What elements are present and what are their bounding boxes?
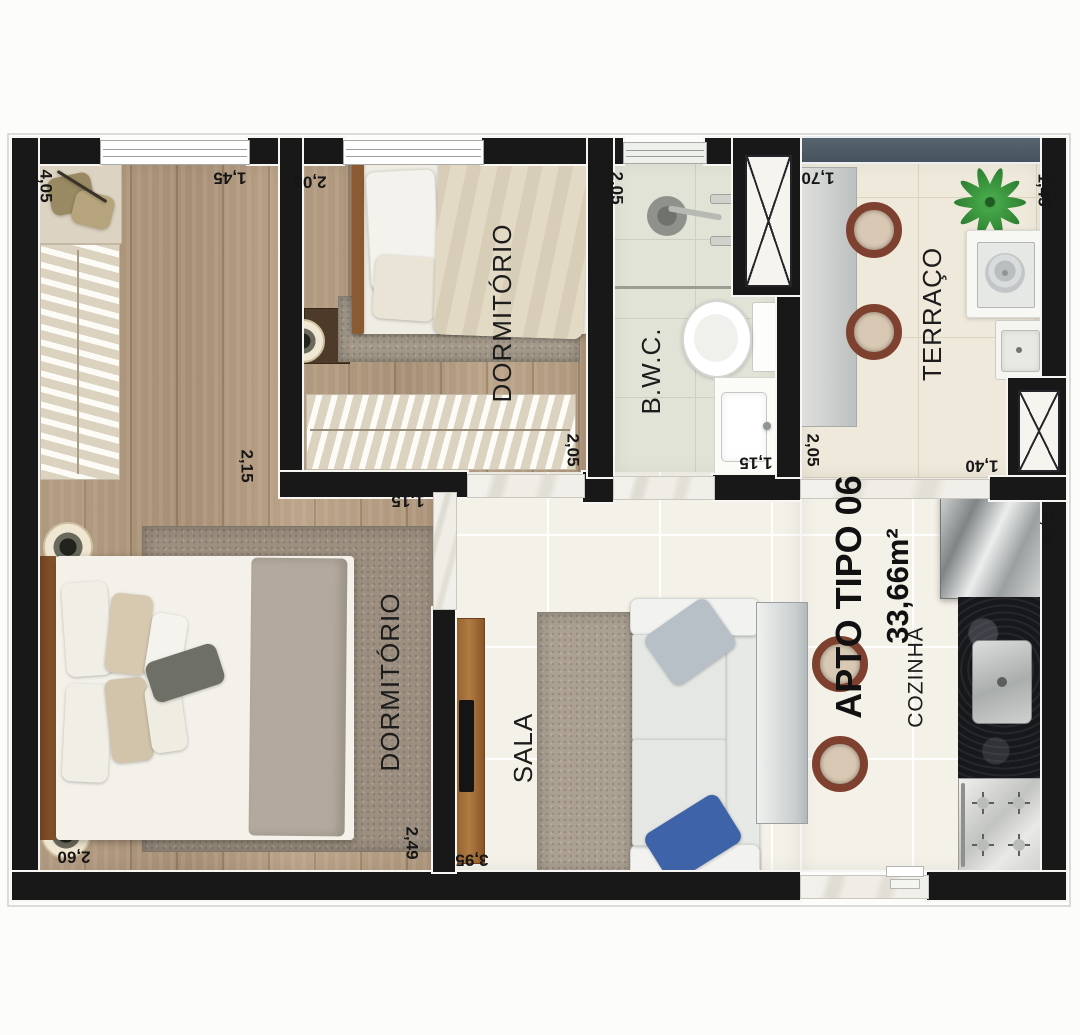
terrace-table xyxy=(797,167,857,427)
tank-drain xyxy=(1016,347,1022,353)
dim-label: 2,05 xyxy=(805,433,822,466)
washing-machine xyxy=(966,230,1044,318)
dim-label: 3,95 xyxy=(455,852,488,869)
sink-drain xyxy=(997,677,1007,687)
washer-dot xyxy=(1002,270,1008,276)
double-bed xyxy=(56,556,354,840)
dim-label: 2,15 xyxy=(239,449,256,482)
dim-label: 2,49 xyxy=(404,826,421,859)
room-label-terraco: TERRAÇO xyxy=(919,247,945,381)
wall-bwc-bottom xyxy=(713,475,800,500)
stove-burner xyxy=(1007,791,1031,815)
bed-headboard xyxy=(352,158,364,334)
bathroom-window xyxy=(623,142,707,164)
room-label-sala: SALA xyxy=(510,713,536,784)
window xyxy=(100,140,250,165)
dim-label: 1,45 xyxy=(213,170,246,187)
toilet-bowl xyxy=(682,300,752,378)
dim-label: 2,05 xyxy=(609,171,626,204)
entry-door-leaf xyxy=(886,866,924,877)
toilet-seat xyxy=(694,314,738,362)
kitchen-sink xyxy=(972,640,1032,724)
room-label-dormitorio-solteiro: DORMITÓRIO xyxy=(489,224,515,403)
vanity-sink xyxy=(721,392,767,462)
closet-rail xyxy=(77,250,79,474)
single-bed xyxy=(352,158,588,334)
dim-label: 2,60 xyxy=(57,849,90,866)
stove-burner xyxy=(1007,833,1031,857)
dim-label: 2,49 xyxy=(1040,511,1057,544)
dim-label: 1,45 xyxy=(1036,173,1053,206)
tv xyxy=(459,700,474,792)
door-threshold-dorm-solteiro xyxy=(467,474,585,498)
door-threshold-dorm-casal xyxy=(433,492,457,610)
wall-bottom xyxy=(927,872,1066,900)
toilet-tank xyxy=(752,302,780,372)
bed-headboard xyxy=(40,556,56,840)
oven-handle xyxy=(961,783,965,867)
dim-label: 2,05 xyxy=(565,433,582,466)
dim-label: 2,05 xyxy=(293,174,326,191)
pillow xyxy=(372,254,438,322)
faucet xyxy=(763,422,771,430)
window xyxy=(343,140,484,165)
wardrobe xyxy=(306,394,576,470)
apartment-area: 33,66m² xyxy=(880,528,916,643)
terrace-chair xyxy=(846,202,902,258)
stove-burner xyxy=(971,791,995,815)
wall-dorm1-sala xyxy=(433,608,455,872)
terrace-chair xyxy=(846,304,902,360)
counter-chair xyxy=(812,736,868,792)
shaft-x-icon xyxy=(1018,390,1060,472)
plant-center xyxy=(985,197,995,207)
room-label-bwc: B.W.C. xyxy=(638,328,664,415)
wall-bwc-terrace xyxy=(777,295,800,477)
wall-left xyxy=(12,138,38,900)
rug-sala xyxy=(537,612,635,874)
plant-icon xyxy=(954,166,1026,238)
wall-bottom xyxy=(12,872,800,900)
dim-label: 1,15 xyxy=(391,493,424,510)
floor-plan: 4,05 1,45 2,05 2,05 1,70 1,45 2,15 2,05 … xyxy=(0,0,1080,1035)
dim-label: 1,15 xyxy=(739,455,772,472)
apartment-title: APTO TIPO 06 xyxy=(828,475,870,718)
terrace-railing xyxy=(790,138,1042,162)
dim-label: 1,40 xyxy=(965,458,998,475)
door-threshold-bwc xyxy=(613,476,715,500)
dim-label: 4,05 xyxy=(38,169,55,202)
stove-burner xyxy=(971,833,995,857)
wall-terrace-kitchen xyxy=(990,477,1066,500)
shaft-x-icon xyxy=(745,155,792,287)
wardrobe-rail xyxy=(310,429,570,431)
shower-head xyxy=(647,196,687,236)
stove xyxy=(958,778,1044,872)
blanket xyxy=(249,558,348,837)
laundry-tank xyxy=(995,320,1044,380)
counter-table xyxy=(756,602,808,824)
entry-door-leaf xyxy=(890,879,920,889)
dim-label: 1,70 xyxy=(801,170,834,187)
sofa xyxy=(630,598,758,880)
closet xyxy=(40,244,120,480)
fridge xyxy=(940,496,1044,599)
room-label-dormitorio-casal: DORMITÓRIO xyxy=(377,593,403,772)
